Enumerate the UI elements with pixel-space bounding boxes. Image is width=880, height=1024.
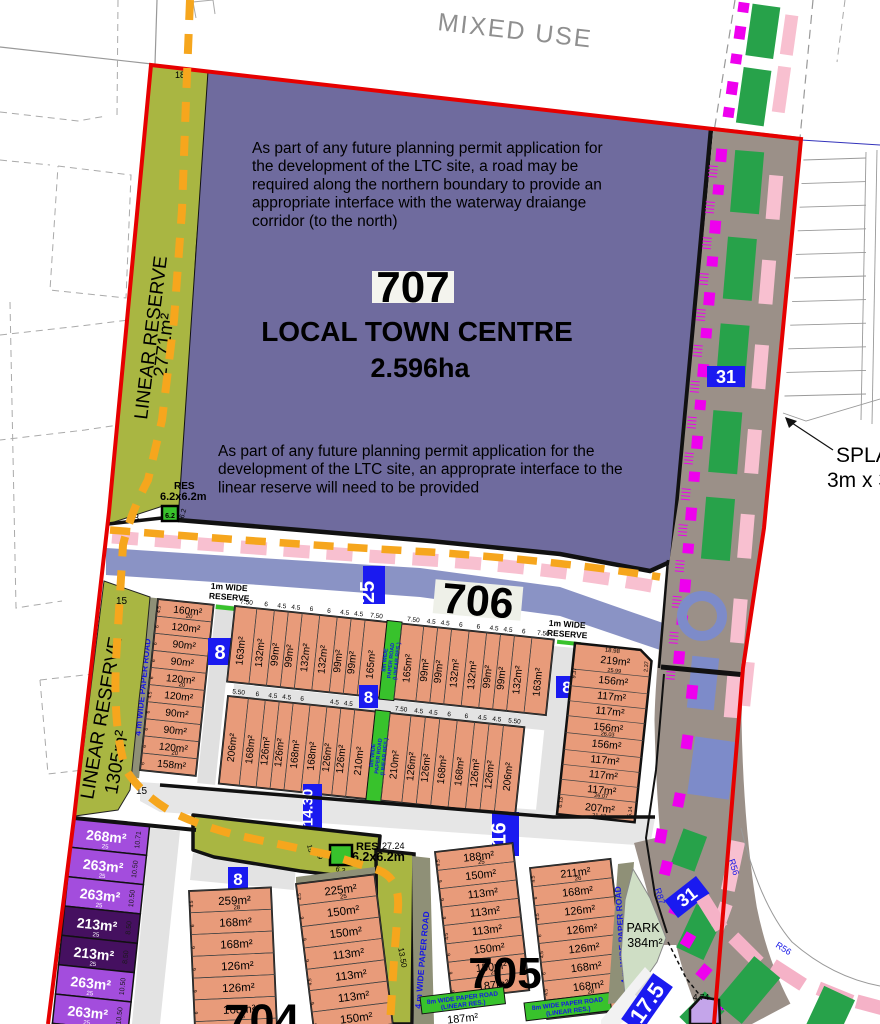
svg-text:2.596ha: 2.596ha bbox=[370, 353, 470, 383]
svg-text:4.5: 4.5 bbox=[189, 900, 195, 907]
svg-text:the development of the LTC sit: the development of the LTC site, a road … bbox=[252, 158, 578, 175]
svg-text:384m²: 384m² bbox=[627, 936, 662, 950]
svg-text:4.5: 4.5 bbox=[489, 625, 499, 633]
svg-text:25: 25 bbox=[83, 1020, 91, 1024]
svg-text:4.5: 4.5 bbox=[268, 692, 278, 700]
svg-text:6.2x6.2m: 6.2x6.2m bbox=[160, 491, 207, 503]
svg-text:4.5: 4.5 bbox=[330, 699, 340, 707]
svg-text:SPLAY: SPLAY bbox=[836, 444, 880, 467]
svg-text:4.5: 4.5 bbox=[340, 609, 350, 617]
svg-text:7.50: 7.50 bbox=[240, 599, 254, 607]
svg-text:7.50: 7.50 bbox=[537, 630, 551, 638]
svg-text:25: 25 bbox=[101, 844, 109, 851]
svg-text:linear reserve will need to be: linear reserve will need to be provided bbox=[218, 479, 479, 496]
svg-text:8: 8 bbox=[233, 870, 242, 889]
svg-text:5.50: 5.50 bbox=[232, 688, 246, 696]
svg-text:8: 8 bbox=[364, 688, 373, 707]
svg-text:4.5: 4.5 bbox=[282, 694, 292, 702]
svg-text:31: 31 bbox=[716, 367, 736, 387]
svg-text:4.5: 4.5 bbox=[444, 932, 451, 940]
svg-text:4.5: 4.5 bbox=[503, 626, 513, 634]
svg-text:4.74: 4.74 bbox=[693, 992, 710, 1002]
svg-text:4.5: 4.5 bbox=[307, 978, 314, 986]
svg-text:187m²: 187m² bbox=[447, 1011, 480, 1024]
svg-text:5.50: 5.50 bbox=[508, 717, 522, 725]
svg-text:6: 6 bbox=[191, 946, 197, 949]
svg-text:126m²: 126m² bbox=[221, 960, 254, 973]
svg-text:704: 704 bbox=[224, 995, 299, 1024]
svg-text:3m x 3m: 3m x 3m bbox=[827, 469, 880, 492]
svg-text:4.5: 4.5 bbox=[492, 716, 502, 724]
svg-text:25: 25 bbox=[86, 991, 94, 998]
svg-text:7.50: 7.50 bbox=[370, 612, 384, 620]
svg-text:As part of any future planning: As part of any future planning permit ap… bbox=[252, 140, 603, 157]
svg-text:707: 707 bbox=[376, 263, 449, 312]
svg-text:168m²: 168m² bbox=[220, 938, 253, 951]
svg-text:LOCAL TOWN CENTRE: LOCAL TOWN CENTRE bbox=[261, 316, 573, 347]
svg-text:6: 6 bbox=[192, 968, 198, 971]
svg-text:4.5: 4.5 bbox=[343, 700, 353, 708]
svg-text:development of the LTC site, a: development of the LTC site, an appropra… bbox=[218, 461, 623, 478]
svg-text:4.5: 4.5 bbox=[354, 611, 364, 619]
svg-text:4.5: 4.5 bbox=[291, 604, 301, 612]
svg-text:25: 25 bbox=[92, 932, 100, 939]
svg-text:7.50: 7.50 bbox=[407, 616, 421, 624]
svg-text:4.5: 4.5 bbox=[428, 709, 438, 717]
svg-text:9.37: 9.37 bbox=[571, 668, 578, 679]
svg-text:25: 25 bbox=[98, 873, 106, 880]
svg-text:6: 6 bbox=[193, 989, 199, 992]
svg-text:25: 25 bbox=[95, 903, 103, 910]
svg-text:25: 25 bbox=[357, 581, 379, 603]
svg-text:14.30: 14.30 bbox=[300, 789, 317, 827]
svg-text:4.5: 4.5 bbox=[147, 691, 154, 699]
svg-text:6: 6 bbox=[194, 1011, 200, 1014]
svg-text:4.5: 4.5 bbox=[477, 714, 487, 722]
svg-text:4.5: 4.5 bbox=[535, 913, 542, 921]
svg-text:706: 706 bbox=[440, 574, 516, 628]
svg-text:4.5: 4.5 bbox=[277, 602, 287, 610]
svg-text:required along the northern bo: required along the northern boundary to … bbox=[252, 176, 602, 193]
svg-text:126m²: 126m² bbox=[222, 982, 255, 995]
svg-text:4.5: 4.5 bbox=[156, 606, 163, 614]
svg-text:2.37: 2.37 bbox=[643, 661, 650, 672]
svg-text:6.13: 6.13 bbox=[558, 797, 565, 808]
svg-text:8.50: 8.50 bbox=[125, 921, 133, 935]
svg-text:8: 8 bbox=[214, 642, 225, 664]
svg-text:168m²: 168m² bbox=[219, 916, 252, 929]
svg-text:6: 6 bbox=[190, 924, 196, 927]
svg-text:4.5: 4.5 bbox=[530, 875, 537, 883]
svg-text:corridor (to the north): corridor (to the north) bbox=[252, 213, 398, 230]
svg-text:4.5: 4.5 bbox=[297, 892, 304, 900]
svg-text:4.5: 4.5 bbox=[414, 708, 424, 716]
svg-text:8.50: 8.50 bbox=[122, 950, 130, 964]
svg-text:25: 25 bbox=[89, 961, 97, 968]
svg-text:4.5: 4.5 bbox=[426, 618, 436, 626]
svg-text:As part of any future planning: As part of any future planning permit ap… bbox=[218, 443, 595, 460]
svg-text:appropriate interface with the: appropriate interface with the waterway … bbox=[252, 195, 586, 212]
svg-text:PARK: PARK bbox=[626, 921, 660, 935]
svg-text:7.50: 7.50 bbox=[394, 706, 408, 714]
svg-text:6.2: 6.2 bbox=[165, 513, 175, 520]
svg-text:4.5: 4.5 bbox=[543, 988, 550, 996]
svg-text:4.5: 4.5 bbox=[435, 859, 442, 867]
svg-text:16: 16 bbox=[488, 822, 511, 845]
svg-text:4.5: 4.5 bbox=[440, 620, 450, 628]
